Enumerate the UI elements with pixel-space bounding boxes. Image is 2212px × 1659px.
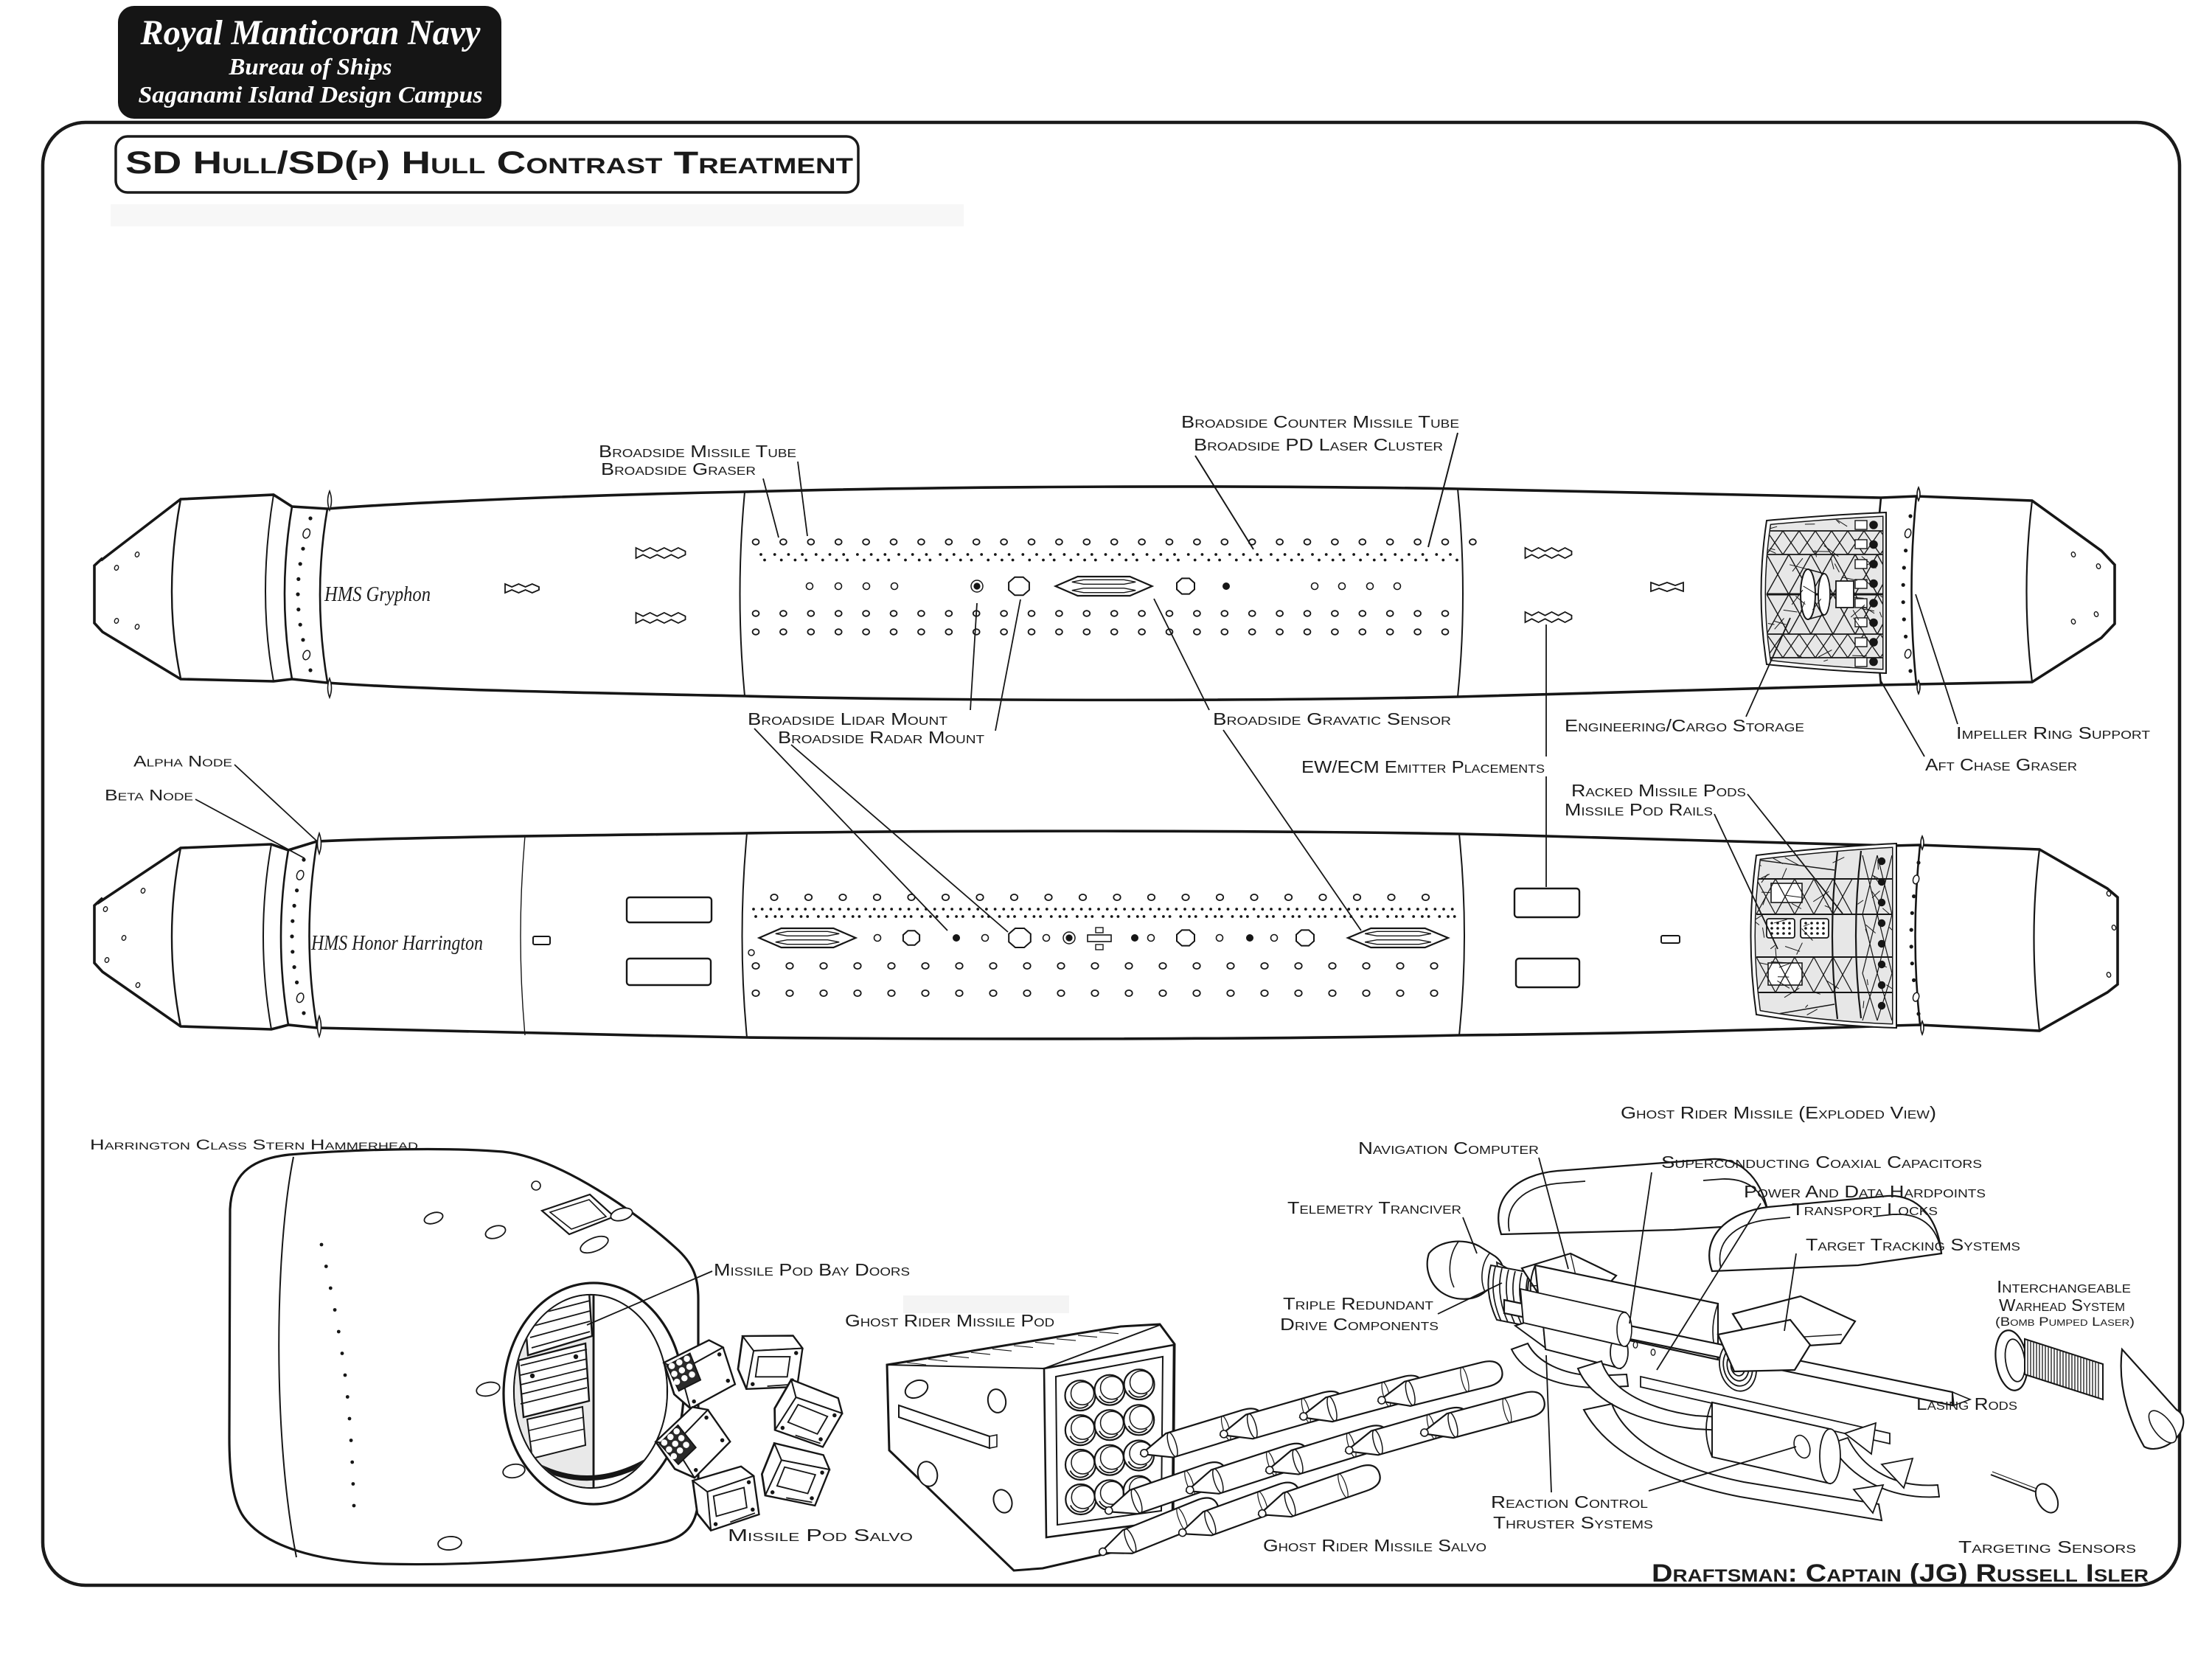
svg-text:Power And Data Hardpoints: Power And Data Hardpoints	[1744, 1182, 1986, 1201]
svg-text:Broadside Counter Missile Tube: Broadside Counter Missile Tube	[1181, 412, 1459, 431]
svg-text:(Bomb Pumped Laser): (Bomb Pumped Laser)	[1995, 1315, 2135, 1329]
svg-text:Transport Locks: Transport Locks	[1792, 1200, 1938, 1219]
svg-text:Missile Pod Salvo: Missile Pod Salvo	[728, 1526, 913, 1545]
svg-text:Engineering/Cargo Storage: Engineering/Cargo Storage	[1565, 716, 1804, 735]
svg-text:Thruster Systems: Thruster Systems	[1493, 1513, 1653, 1532]
svg-text:Navigation Computer: Navigation Computer	[1358, 1138, 1539, 1158]
svg-text:Impeller Ring Support: Impeller Ring Support	[1956, 723, 2150, 742]
svg-text:Target Tracking Systems: Target Tracking Systems	[1806, 1235, 2020, 1254]
svg-text:Beta Node: Beta Node	[105, 787, 193, 804]
svg-text:Ghost Rider Missile Salvo: Ghost Rider Missile Salvo	[1263, 1536, 1486, 1555]
svg-text:Racked Missile Pods: Racked Missile Pods	[1571, 781, 1746, 800]
svg-text:HMS Honor Harrington: HMS Honor Harrington	[310, 932, 483, 955]
svg-text:Broadside Lidar Mount: Broadside Lidar Mount	[748, 709, 947, 728]
svg-text:Saganami Island Design Campus: Saganami Island Design Campus	[139, 81, 483, 108]
svg-text:Aft Chase Graser: Aft Chase Graser	[1925, 755, 2077, 774]
svg-text:Bureau of Ships: Bureau of Ships	[228, 53, 392, 80]
svg-text:Superconducting Coaxial Capaci: Superconducting Coaxial Capacitors	[1661, 1152, 1982, 1172]
svg-text:Ghost Rider Missile (Exploded: Ghost Rider Missile (Exploded View)	[1621, 1103, 1936, 1122]
svg-text:Triple Redundant: Triple Redundant	[1283, 1294, 1433, 1313]
svg-text:Reaction Control: Reaction Control	[1491, 1492, 1648, 1512]
svg-text:Broadside Graser: Broadside Graser	[601, 459, 756, 479]
svg-text:Targeting Sensors: Targeting Sensors	[1958, 1537, 2136, 1557]
svg-text:Interchangeable: Interchangeable	[1997, 1277, 2131, 1296]
svg-text:Drive Components: Drive Components	[1280, 1315, 1439, 1334]
svg-text:Missile Pod Bay Doors: Missile Pod Bay Doors	[714, 1260, 910, 1279]
svg-text:EW/ECM Emitter Placements: EW/ECM Emitter Placements	[1301, 757, 1545, 776]
svg-text:Draftsman: Captain (JG) Russel: Draftsman: Captain (JG) Russell Isler	[1652, 1559, 2149, 1587]
svg-text:Broadside Missile Tube: Broadside Missile Tube	[599, 442, 796, 461]
svg-text:Telemetry Tranciver: Telemetry Tranciver	[1287, 1198, 1461, 1217]
svg-text:HMS Gryphon: HMS Gryphon	[324, 583, 431, 606]
svg-text:Broadside Radar Mount: Broadside Radar Mount	[778, 728, 984, 747]
svg-text:Missile Pod Rails: Missile Pod Rails	[1565, 800, 1713, 819]
svg-text:Warhead System: Warhead System	[1999, 1295, 2125, 1315]
svg-text:Lasing Rods: Lasing Rods	[1916, 1394, 2017, 1413]
svg-text:Broadside PD Laser Cluster: Broadside PD Laser Cluster	[1194, 435, 1443, 454]
svg-text:Royal Manticoran Navy: Royal Manticoran Navy	[140, 13, 481, 52]
svg-text:Broadside Gravatic Sensor: Broadside Gravatic Sensor	[1213, 709, 1451, 728]
svg-text:Ghost Rider Missile Pod: Ghost Rider Missile Pod	[845, 1311, 1054, 1330]
svg-text:Alpha Node: Alpha Node	[133, 753, 232, 770]
svg-text:SD Hull/SD(p) Hull Contrast Tr: SD Hull/SD(p) Hull Contrast Treatment	[125, 145, 853, 181]
